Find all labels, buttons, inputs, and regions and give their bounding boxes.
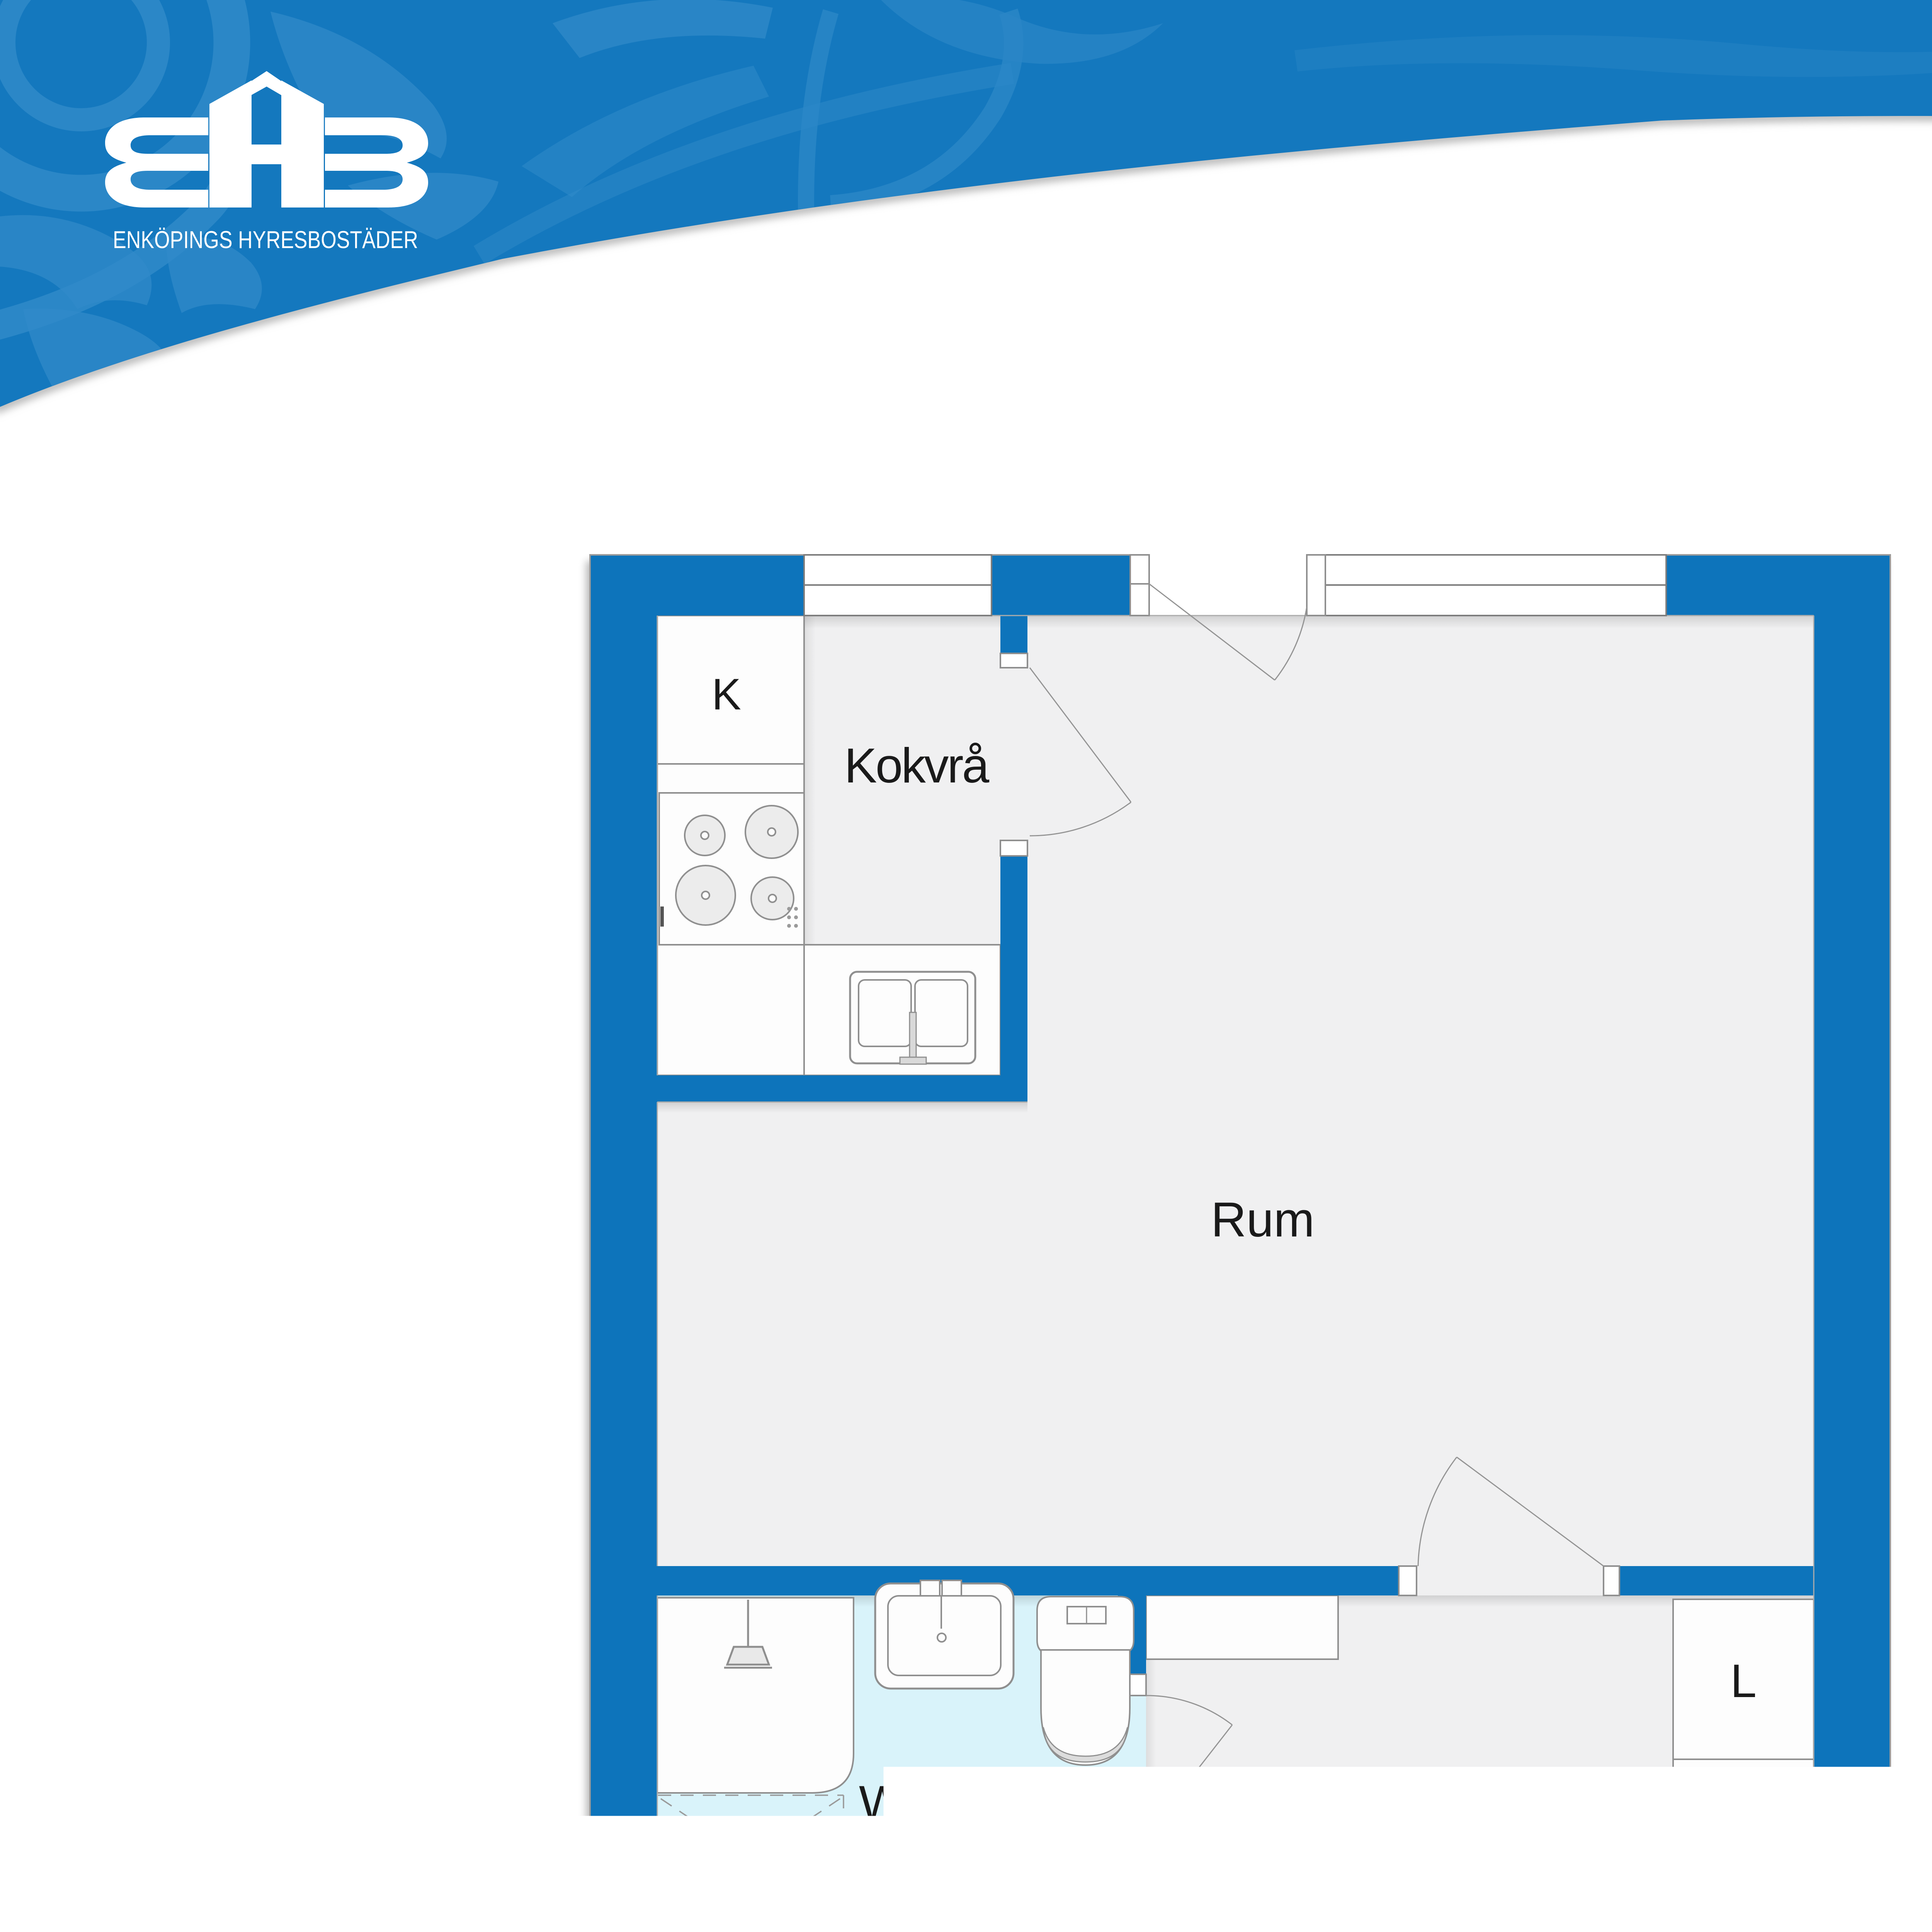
svg-text:L: L <box>1730 1655 1757 1707</box>
svg-text:Kokvrå: Kokvrå <box>844 738 990 793</box>
svg-text:Wc/dusch: Wc/dusch <box>859 1776 1075 1830</box>
svg-text:ENKÖPINGS HYRESBOSTÄDER: ENKÖPINGS HYRESBOSTÄDER <box>113 226 418 253</box>
svg-text:G: G <box>1725 1815 1762 1867</box>
svg-text:K: K <box>712 670 741 719</box>
svg-text:Rum: Rum <box>1211 1192 1315 1247</box>
